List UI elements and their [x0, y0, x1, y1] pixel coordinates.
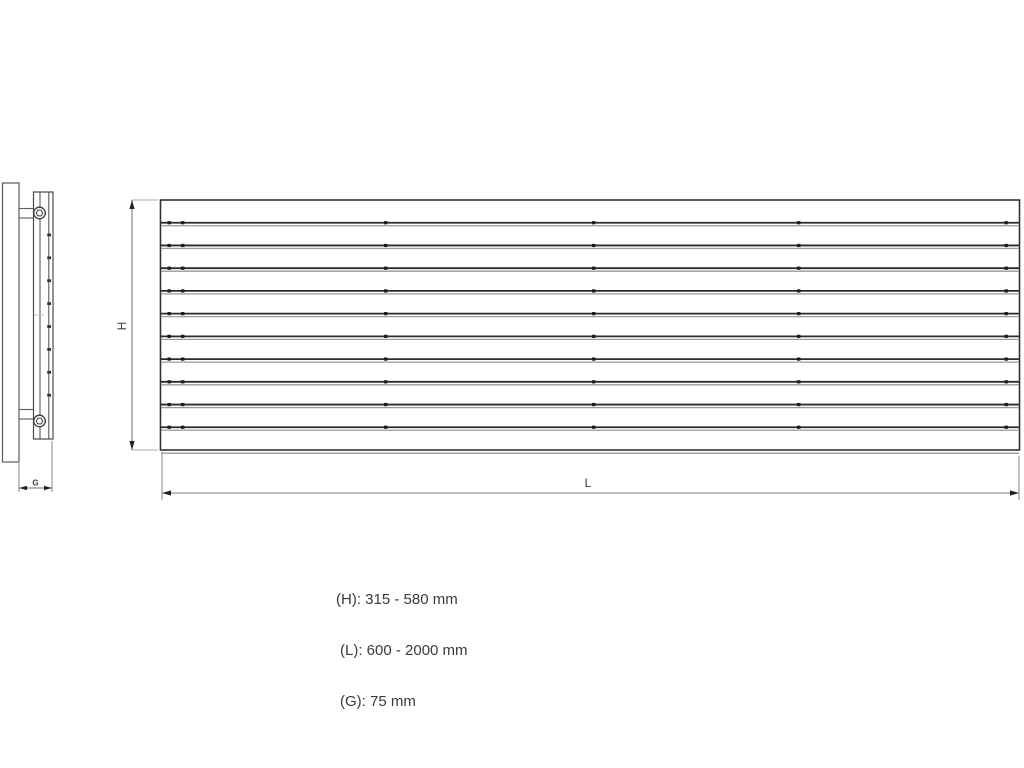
dimension-h-label: H [115, 322, 129, 331]
radiator-technical-drawing: G H L (H) [0, 0, 1024, 768]
arrow-up-icon [129, 200, 134, 209]
top-valve-icon [34, 207, 46, 219]
radiator-profile [34, 192, 54, 439]
dimension-g: G [19, 441, 52, 492]
drawing-svg: G H L [0, 0, 1024, 768]
top-bracket [19, 209, 34, 219]
arrow-left-icon [162, 490, 171, 495]
arrow-right-icon [44, 486, 52, 491]
legend-line-l: (L): 600 - 2000 mm [336, 642, 468, 659]
arrow-down-icon [129, 441, 134, 450]
bottom-valve-icon [34, 415, 46, 427]
dimension-g-label: G [32, 479, 38, 488]
bottom-bracket [19, 410, 34, 420]
legend-line-g: (G): 75 mm [336, 693, 468, 710]
arrow-right-icon [1010, 490, 1019, 495]
dimension-legend: (H): 315 - 580 mm (L): 600 - 2000 mm (G)… [336, 557, 468, 744]
arrow-left-icon [19, 486, 27, 491]
side-view [3, 183, 54, 462]
legend-line-h: (H): 315 - 580 mm [336, 591, 468, 608]
dimension-l: L [162, 452, 1019, 500]
wall-plate [3, 183, 20, 462]
panel-outline [161, 200, 1020, 450]
dimension-h: H [115, 200, 158, 450]
dimension-l-label: L [585, 476, 592, 490]
front-view [161, 200, 1020, 453]
